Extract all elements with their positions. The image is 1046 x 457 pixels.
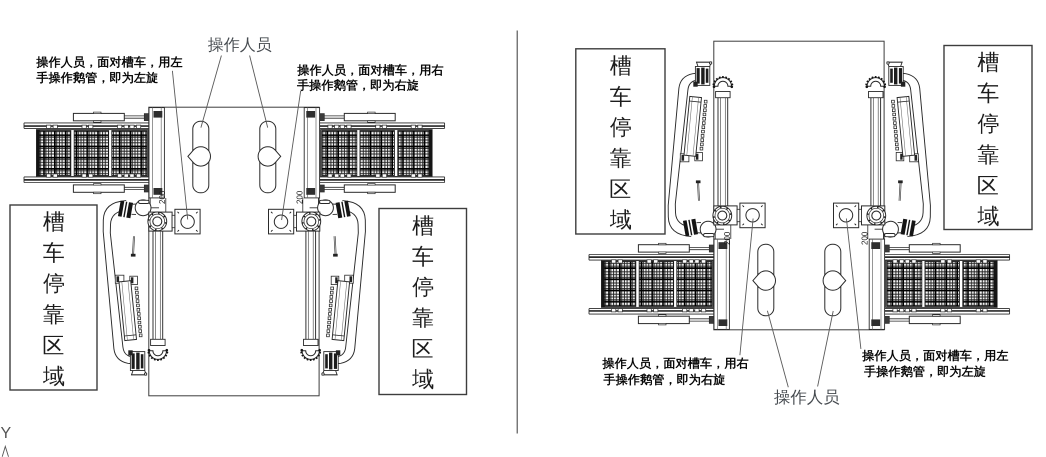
svg-text:200: 200 xyxy=(723,231,732,245)
svg-text:200: 200 xyxy=(158,190,167,204)
svg-text:200: 200 xyxy=(861,231,870,245)
svg-text:Y: Y xyxy=(1,425,12,442)
svg-text:200: 200 xyxy=(296,190,305,204)
